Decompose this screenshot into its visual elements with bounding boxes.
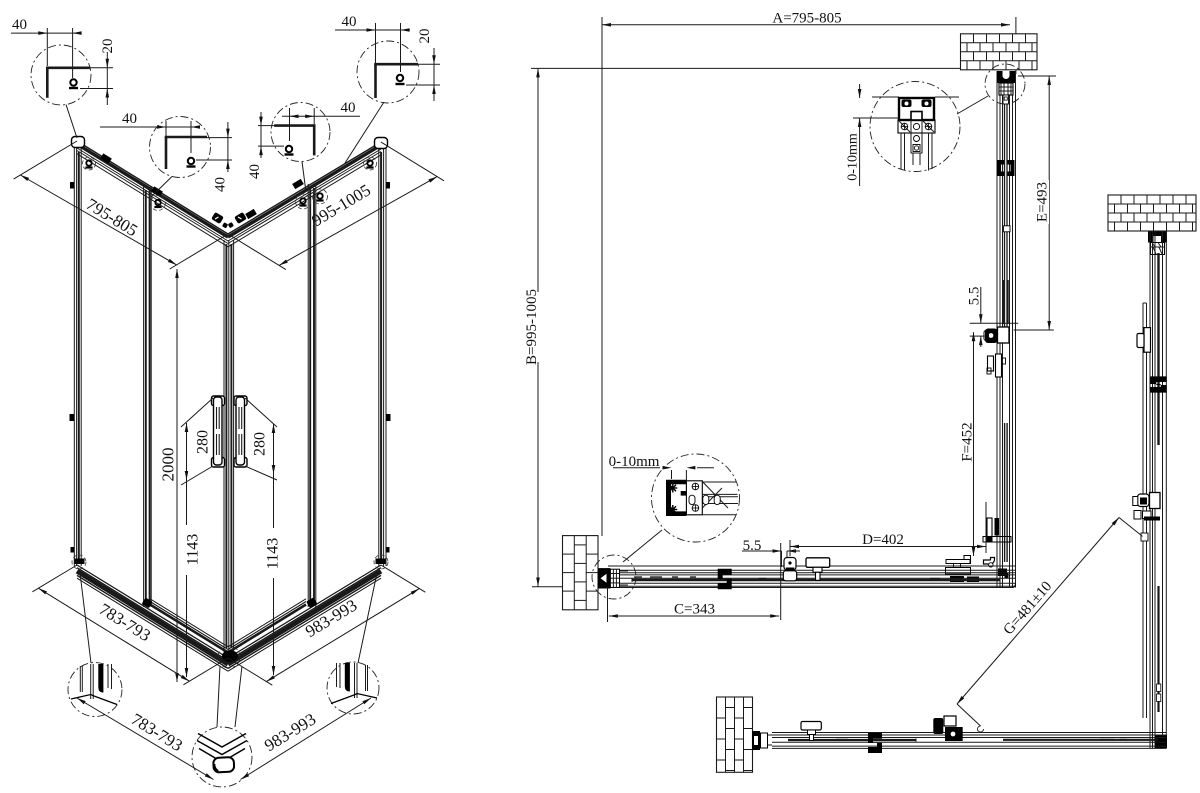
- svg-text:B=995-1005: B=995-1005: [524, 289, 540, 365]
- svg-text:F=452: F=452: [960, 422, 976, 461]
- svg-text:1143: 1143: [265, 538, 282, 569]
- svg-text:40: 40: [247, 164, 263, 179]
- svg-text:40: 40: [122, 111, 137, 127]
- svg-text:40: 40: [213, 177, 229, 192]
- svg-text:280: 280: [252, 432, 269, 456]
- svg-text:5.5: 5.5: [743, 538, 762, 554]
- svg-text:C=343: C=343: [674, 602, 715, 618]
- svg-text:A=795-805: A=795-805: [772, 11, 841, 27]
- svg-text:2000: 2000: [159, 448, 178, 482]
- svg-text:280: 280: [195, 430, 212, 454]
- svg-text:5.5: 5.5: [967, 287, 983, 306]
- svg-text:D=402: D=402: [862, 532, 904, 548]
- svg-text:40: 40: [342, 14, 357, 30]
- svg-text:20: 20: [100, 39, 116, 54]
- svg-text:E=493: E=493: [1035, 182, 1051, 222]
- svg-text:1143: 1143: [185, 534, 202, 565]
- svg-text:20: 20: [417, 29, 433, 44]
- svg-text:40: 40: [341, 100, 356, 116]
- svg-text:40: 40: [12, 17, 27, 33]
- svg-text:0-10mm: 0-10mm: [846, 133, 861, 181]
